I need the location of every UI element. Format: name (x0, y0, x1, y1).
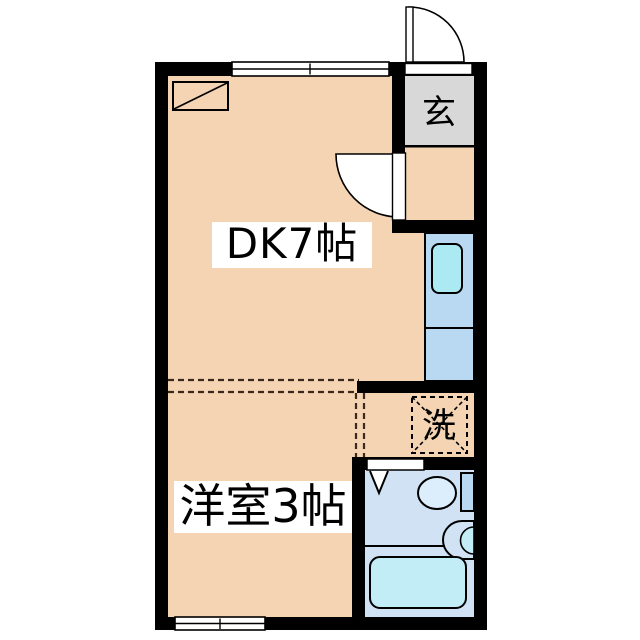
dk-door-leaf (393, 153, 406, 220)
bottom-window (175, 617, 265, 630)
top-window (232, 62, 389, 76)
floor-plan: DK7帖 洋室3帖 玄 洗 (0, 0, 640, 640)
toilet-tank (461, 473, 474, 511)
entrance-label-text: 玄 (422, 93, 456, 133)
dk-label-text: DK7帖 (226, 219, 359, 268)
floor-plan-canvas: DK7帖 洋室3帖 玄 洗 (0, 0, 640, 640)
wall-dk-laundry (357, 381, 474, 393)
entrance-door-opening (405, 64, 472, 75)
wall-dk-entrance (392, 62, 405, 154)
kitchen-counter-lower-unit (425, 328, 474, 381)
entrance-door-swing (409, 7, 464, 62)
entrance-door-leaf (406, 7, 413, 62)
dk-label: DK7帖 (212, 219, 372, 268)
toilet (418, 477, 456, 509)
entrance-door (405, 7, 472, 75)
bathtub (370, 557, 466, 608)
entrance-step-edge (405, 145, 474, 148)
laundry-label-text: 洗 (422, 406, 456, 446)
kitchen-counter (425, 233, 474, 381)
western-room-label-text: 洋室3帖 (179, 479, 346, 533)
wall-left (155, 62, 168, 630)
bathroom (365, 459, 474, 617)
bathroom-door-opening (367, 459, 424, 470)
wall-right (474, 62, 487, 630)
western-room-label: 洋室3帖 (174, 479, 352, 533)
wall-hallway-bottom (392, 220, 474, 233)
wall-bathroom-left (352, 457, 365, 630)
kitchen-sink (432, 244, 462, 293)
